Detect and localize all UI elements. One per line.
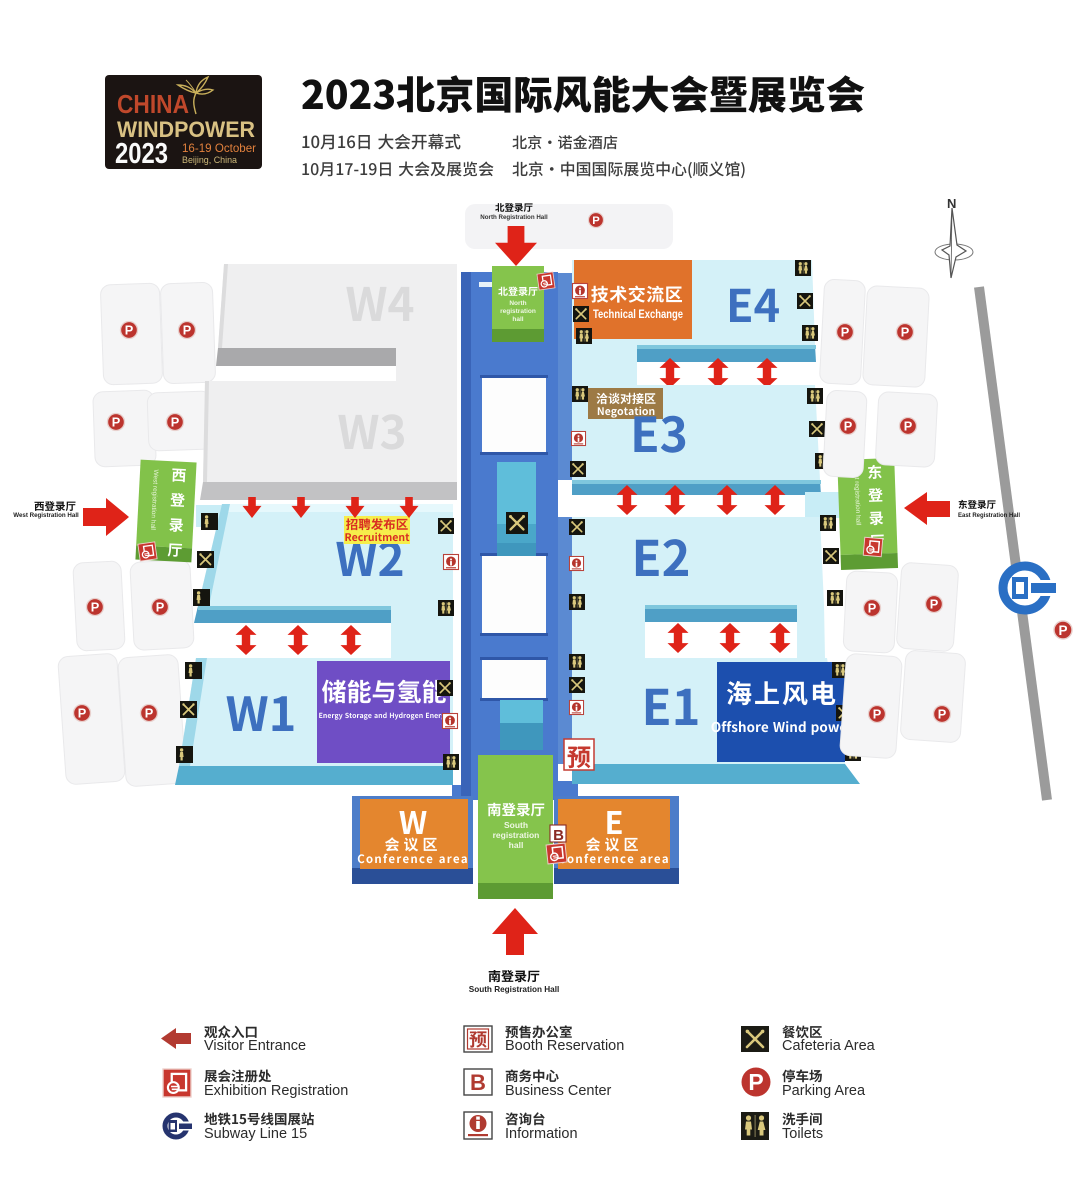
svg-text:registration: registration <box>493 830 540 840</box>
svg-text:B: B <box>470 1070 486 1095</box>
svg-text:P: P <box>171 415 180 430</box>
svg-text:P: P <box>78 706 87 721</box>
svg-text:P: P <box>1058 623 1067 638</box>
svg-text:P: P <box>873 707 882 722</box>
svg-text:P: P <box>930 597 939 612</box>
svg-text:Parking Area: Parking Area <box>782 1083 866 1099</box>
svg-text:P: P <box>748 1069 763 1095</box>
svg-text:P: P <box>904 419 913 434</box>
svg-text:P: P <box>91 600 100 615</box>
svg-text:P: P <box>868 601 877 616</box>
svg-text:registration: registration <box>500 308 536 315</box>
svg-text:P: P <box>112 415 121 430</box>
svg-text:Business Center: Business Center <box>505 1083 612 1099</box>
svg-text:P: P <box>145 706 154 721</box>
svg-text:16-19 October: 16-19 October <box>182 141 256 155</box>
svg-text:East Registration Hall: East Registration Hall <box>958 513 1020 519</box>
svg-text:hall: hall <box>512 316 523 323</box>
svg-text:P: P <box>844 419 853 434</box>
svg-text:Booth Reservation: Booth Reservation <box>505 1038 624 1054</box>
svg-text:Beijing, China: Beijing, China <box>182 155 238 166</box>
svg-text:P: P <box>592 215 600 227</box>
svg-text:P: P <box>841 325 850 340</box>
svg-text:Technical Exchange: Technical Exchange <box>593 307 683 321</box>
svg-text:Toilets: Toilets <box>782 1126 823 1142</box>
svg-text:South Registration Hall: South Registration Hall <box>469 985 560 994</box>
svg-text:Cafeteria Area: Cafeteria Area <box>782 1038 876 1054</box>
svg-text:North Registration Hall: North Registration Hall <box>480 214 548 221</box>
svg-text:Subway Line 15: Subway Line 15 <box>204 1126 307 1142</box>
svg-text:P: P <box>901 325 910 340</box>
svg-text:B: B <box>553 827 564 844</box>
svg-text:Information: Information <box>505 1126 578 1142</box>
svg-text:North: North <box>509 300 526 307</box>
svg-text:Exhibition Registration: Exhibition Registration <box>204 1083 348 1099</box>
svg-text:CHINA: CHINA <box>117 89 189 119</box>
svg-text:2023: 2023 <box>115 138 168 170</box>
svg-text:P: P <box>125 323 134 338</box>
svg-text:Visitor Entrance: Visitor Entrance <box>204 1038 306 1054</box>
svg-text:P: P <box>938 707 947 722</box>
svg-text:South: South <box>504 820 528 830</box>
svg-text:P: P <box>183 323 192 338</box>
svg-text:hall: hall <box>509 840 524 850</box>
svg-text:P: P <box>156 600 165 615</box>
svg-text:West Registration Hall: West Registration Hall <box>13 512 79 519</box>
